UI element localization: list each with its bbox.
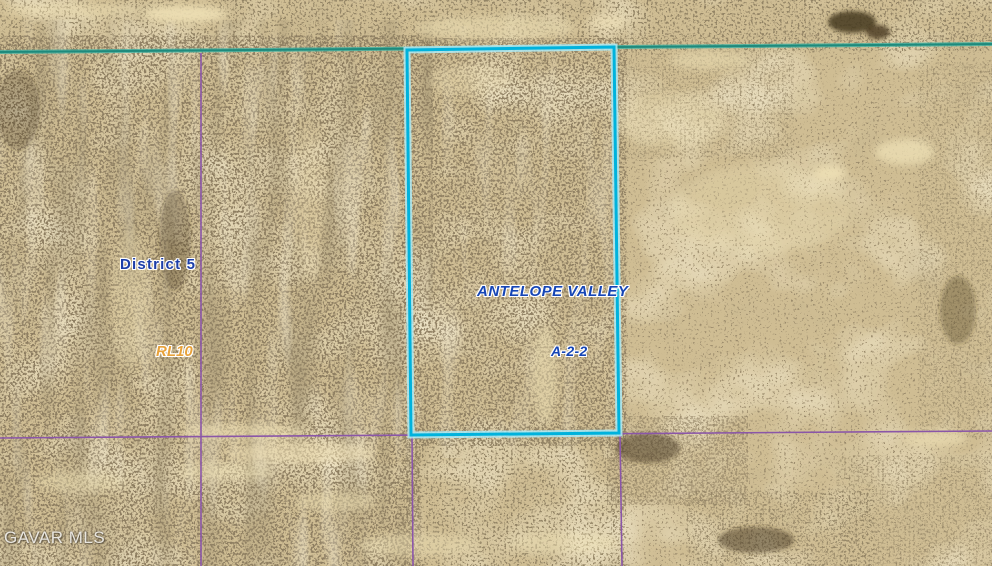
mls-watermark: GAVAR MLS: [4, 528, 105, 548]
parcel-boundary-highlight[interactable]: [407, 47, 619, 435]
land-use-label: RL10: [156, 343, 193, 360]
zoning-label: A-2-2: [551, 343, 588, 359]
parcel-boundary-halo: [407, 47, 619, 435]
map-canvas: District 5 ANTELOPE VALLEY A-2-2 RL10 GA…: [0, 0, 992, 566]
area-name-label: ANTELOPE VALLEY: [477, 283, 628, 300]
parcel-line-vertical-right: [620, 434, 622, 566]
district-label: District 5: [120, 256, 196, 273]
parcel-line-vertical-mid: [412, 435, 413, 566]
